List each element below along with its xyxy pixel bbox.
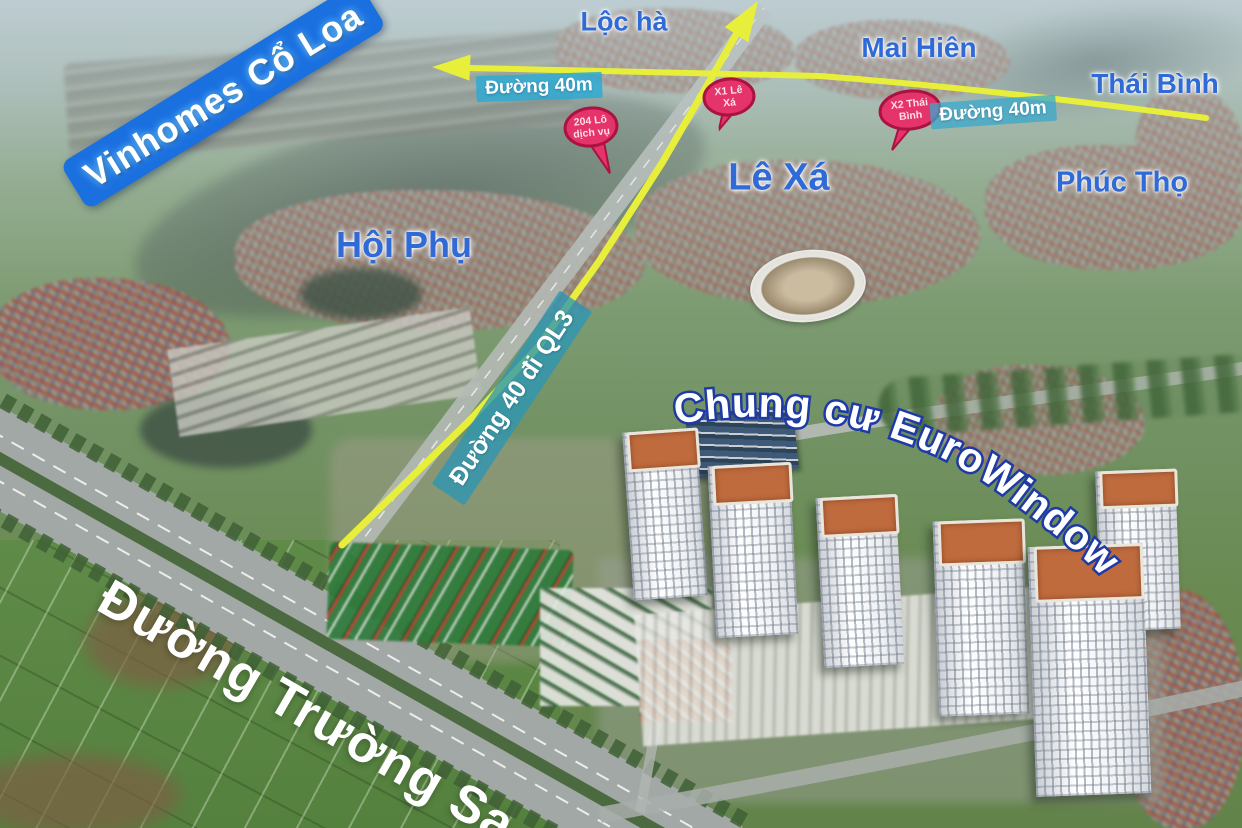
place-label-mai-hien: Mai Hiên (861, 32, 976, 64)
place-label-hoi-phu: Hội Phụ (336, 224, 472, 266)
road-label-40m-left: Đường 40m (476, 72, 602, 102)
place-label-phuc-tho: Phúc Thọ (1056, 167, 1188, 200)
place-label-thai-binh: Thái Bình (1091, 68, 1219, 100)
place-label-le-xa: Lê Xá (728, 157, 829, 200)
aerial-map: Chung cư EuroWindow 204 Lô dịch vụ X1 Lê… (0, 0, 1242, 828)
arrowhead-up-icon (725, 1, 758, 42)
pin-text-line2: Bình (898, 109, 922, 123)
place-label-loc-ha: Lộc hà (580, 7, 667, 38)
pin-204-lo-dich-vu: 204 Lô dịch vụ (563, 105, 622, 177)
pin-text-line2: Xá (723, 96, 737, 109)
pin-x1-le-xa: X1 Lê Xá (703, 77, 757, 130)
arrow-road40-ql3 (342, 26, 741, 545)
complex-label: Chung cư EuroWindow (671, 380, 1130, 584)
arrowhead-left-icon (432, 55, 471, 81)
